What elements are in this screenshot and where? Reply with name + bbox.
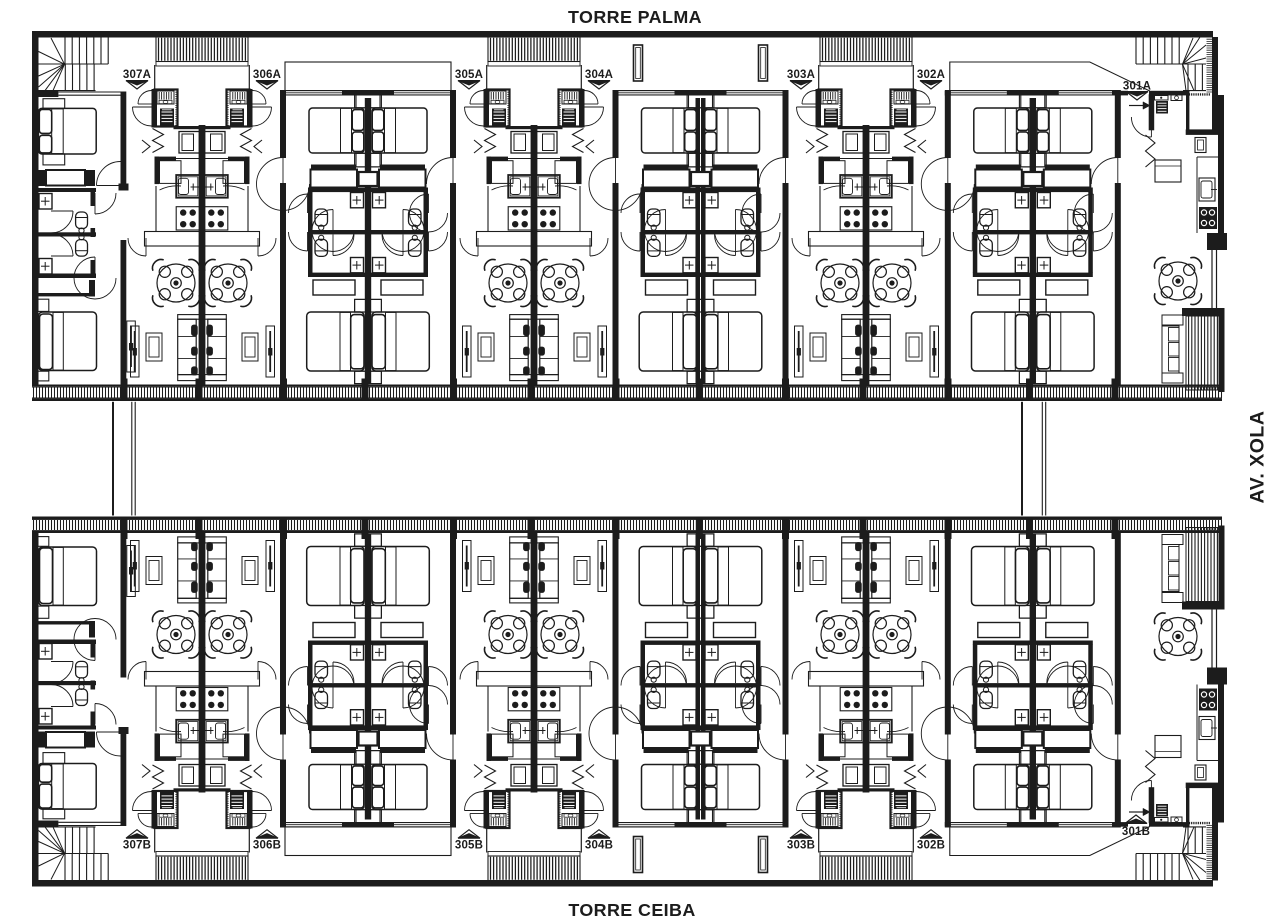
svg-text:305A: 305A	[455, 69, 483, 81]
svg-text:302B: 302B	[917, 840, 945, 852]
svg-text:303B: 303B	[787, 840, 815, 852]
svg-text:TORRE PALMA: TORRE PALMA	[568, 7, 702, 27]
svg-text:302A: 302A	[917, 69, 945, 81]
svg-text:304A: 304A	[585, 69, 613, 81]
svg-text:306A: 306A	[253, 69, 281, 81]
svg-text:306B: 306B	[253, 840, 281, 852]
svg-text:307A: 307A	[123, 69, 151, 81]
svg-text:301B: 301B	[1122, 826, 1150, 838]
svg-text:TORRE CEIBA: TORRE CEIBA	[568, 900, 695, 920]
svg-text:307B: 307B	[123, 840, 151, 852]
svg-text:303A: 303A	[787, 69, 815, 81]
svg-text:AV. XOLA: AV. XOLA	[1247, 411, 1268, 504]
svg-text:301A: 301A	[1123, 81, 1151, 93]
svg-text:305B: 305B	[455, 840, 483, 852]
svg-text:304B: 304B	[585, 840, 613, 852]
